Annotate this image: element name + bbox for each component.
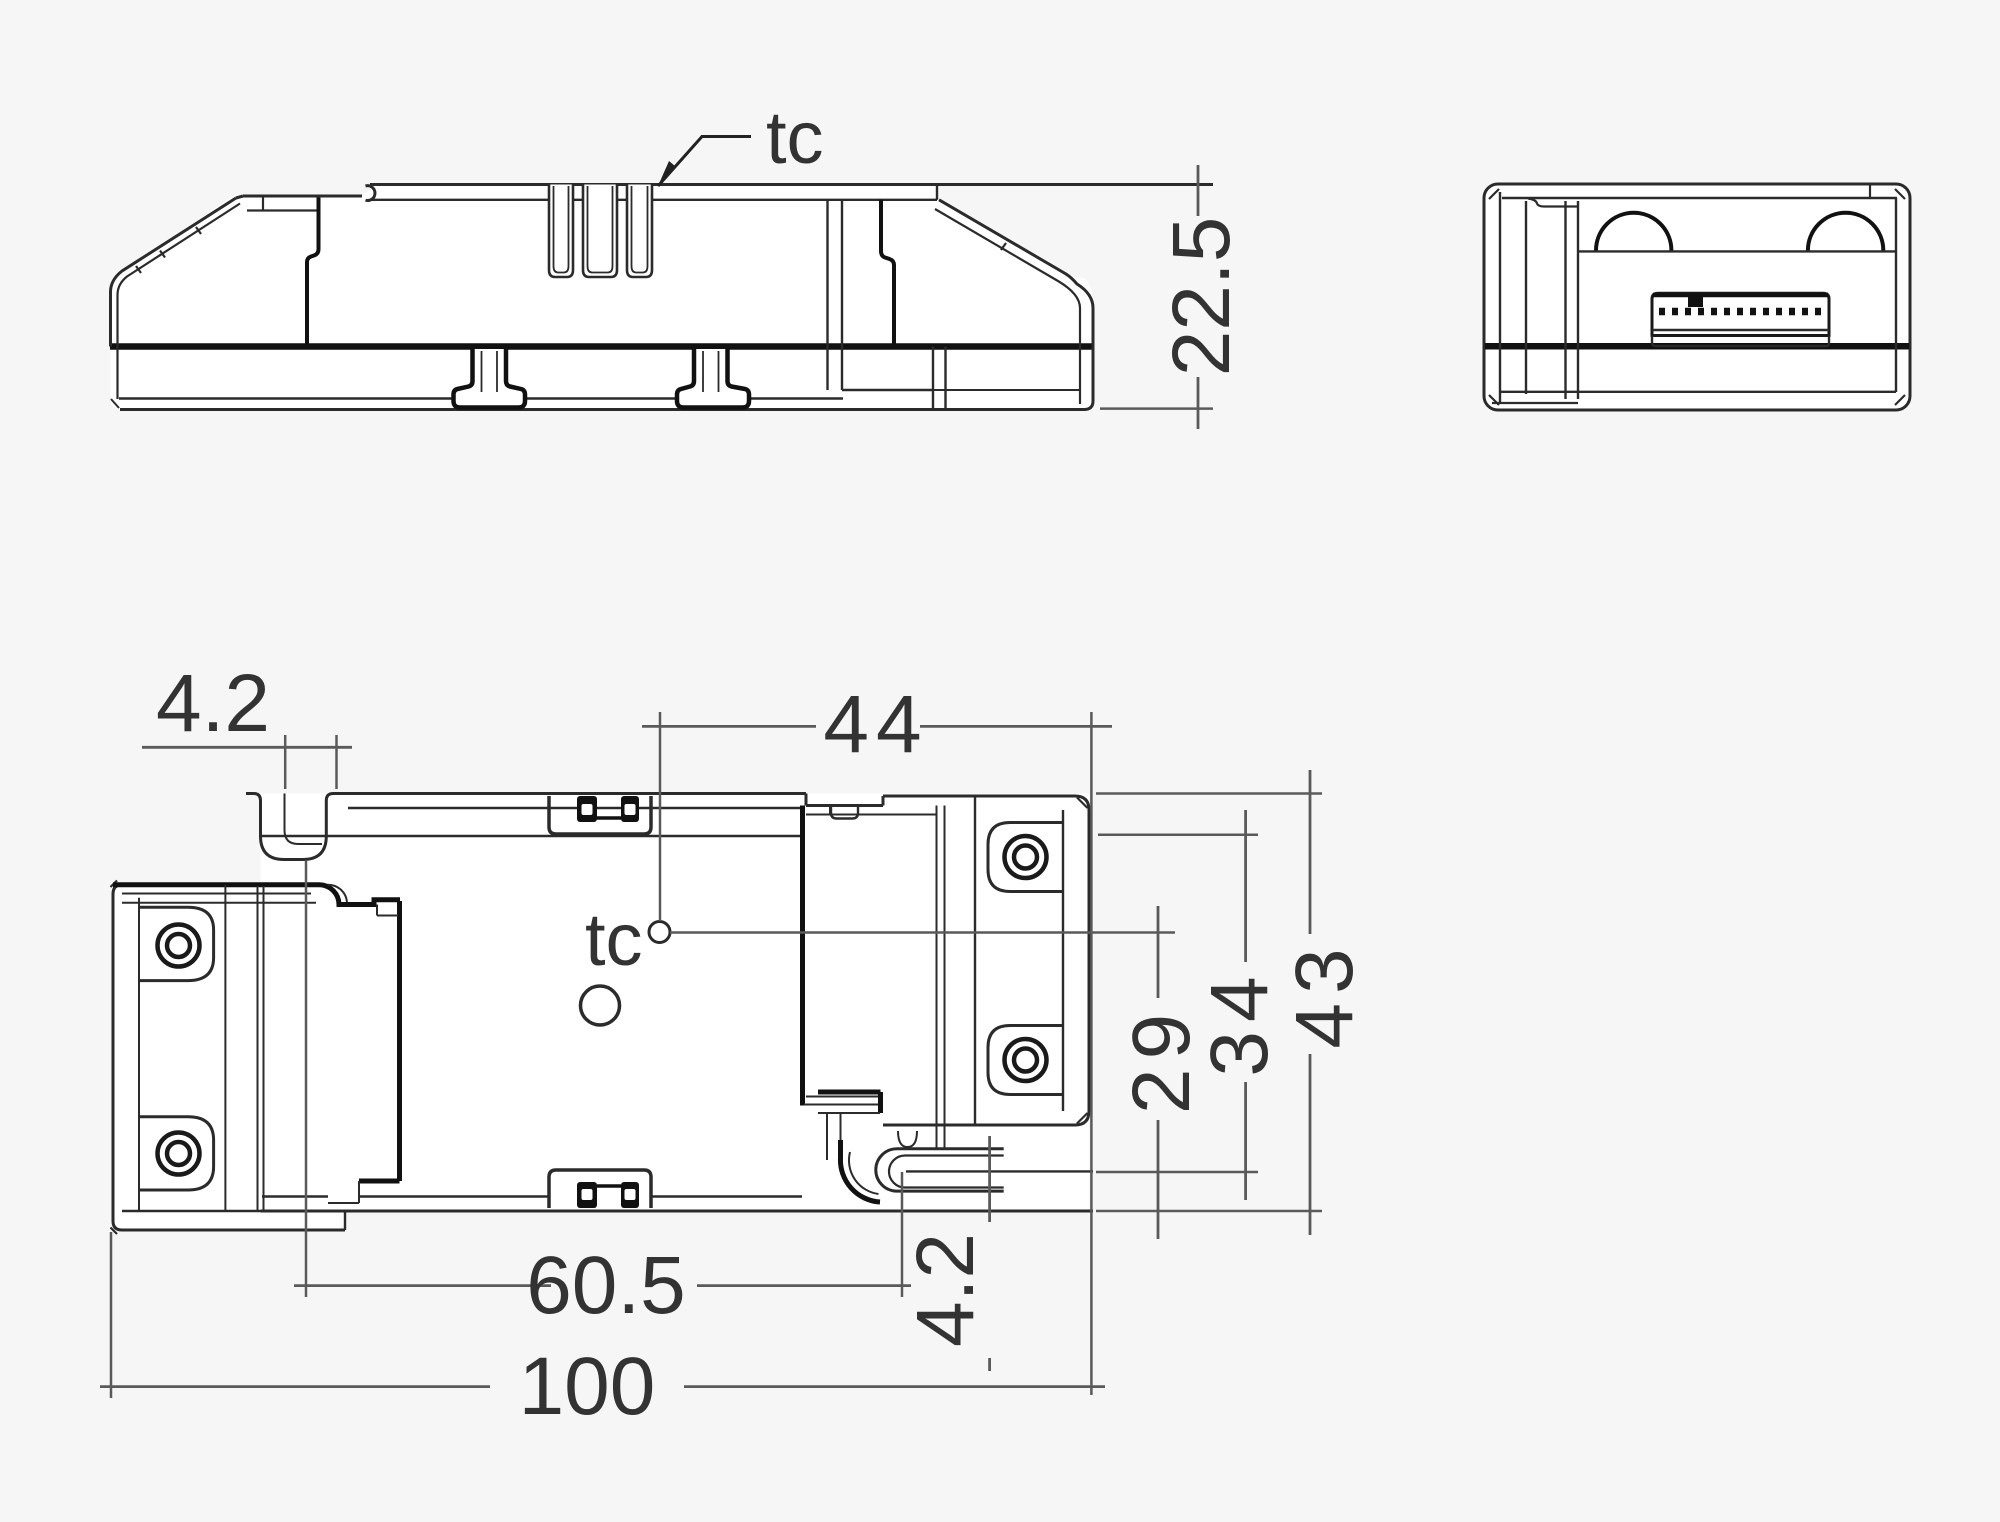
svg-text:tc: tc [766, 96, 824, 179]
svg-text:tc: tc [585, 898, 643, 981]
svg-text:44: 44 [823, 679, 928, 770]
svg-text:100: 100 [519, 1341, 656, 1432]
svg-text:34: 34 [1194, 967, 1285, 1076]
svg-text:60.5: 60.5 [526, 1240, 686, 1331]
svg-text:43: 43 [1279, 939, 1370, 1048]
svg-text:4.2: 4.2 [156, 658, 270, 749]
svg-text:4.2: 4.2 [900, 1233, 991, 1347]
svg-text:22.5: 22.5 [1156, 217, 1247, 377]
